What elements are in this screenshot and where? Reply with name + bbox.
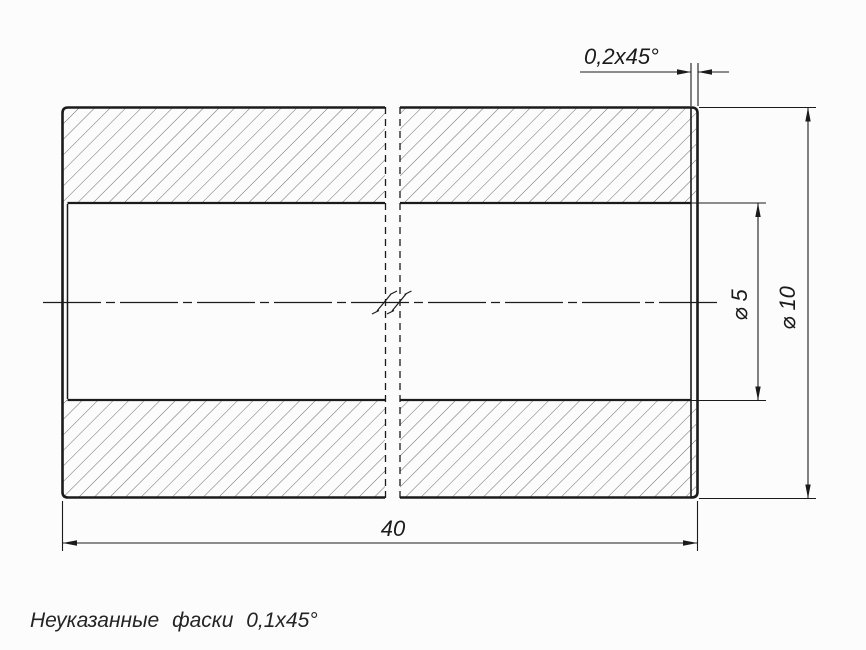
dimension-text-bore-diameter: ⌀ 5 [727,288,752,320]
section-wall-bottom-left [63,400,385,498]
arrowhead-left [63,540,78,546]
technical-drawing-canvas: 40 ⌀ 5 ⌀ 10 0,2x45° Неуказанные фаски 0,… [0,0,866,650]
note-unspecified-chamfers: Неуказанные фаски 0,1x45° [30,609,318,632]
dimension-text-chamfer: 0,2x45° [584,44,659,69]
bore-edges [68,203,692,400]
section-wall-top-right [400,108,696,203]
dimension-text-length: 40 [381,516,406,541]
arrowhead-right [677,69,691,74]
arrowhead-down [755,387,760,401]
dimension-bore-diameter: ⌀ 5 [691,203,766,401]
arrowhead-up [805,108,810,122]
arrowhead-right [683,540,698,546]
section-wall-top-left [63,108,385,203]
dimension-text-outer-diameter: ⌀ 10 [775,285,800,330]
arrowhead-down [805,485,810,499]
extension-lines-chamfer [691,63,698,106]
dimension-chamfer: 0,2x45° [580,44,729,106]
drawing-sheet: 40 ⌀ 5 ⌀ 10 0,2x45° Неуказанные фаски 0,… [0,0,866,650]
arrowhead-left [698,69,712,74]
dimension-length: 40 [63,501,698,551]
section-wall-bottom-right [400,400,696,498]
arrowhead-up [755,203,760,217]
